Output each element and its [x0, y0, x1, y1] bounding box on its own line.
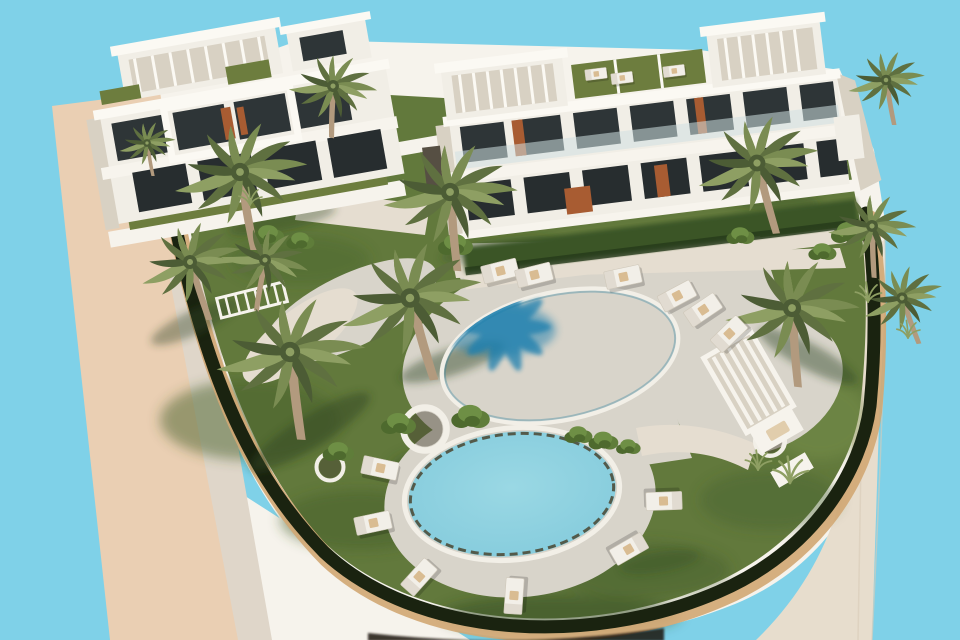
rendering-canvas: Aerial 3D rendering of a modern white re… — [0, 0, 960, 640]
sun-lounger — [585, 67, 609, 83]
architectural-rendering: Aerial 3D rendering of a modern white re… — [0, 0, 960, 640]
sun-lounger — [663, 64, 687, 80]
entry-gate — [564, 186, 593, 215]
sun-lounger — [611, 71, 635, 87]
sun-lounger — [504, 575, 529, 614]
sun-lounger — [644, 487, 683, 510]
